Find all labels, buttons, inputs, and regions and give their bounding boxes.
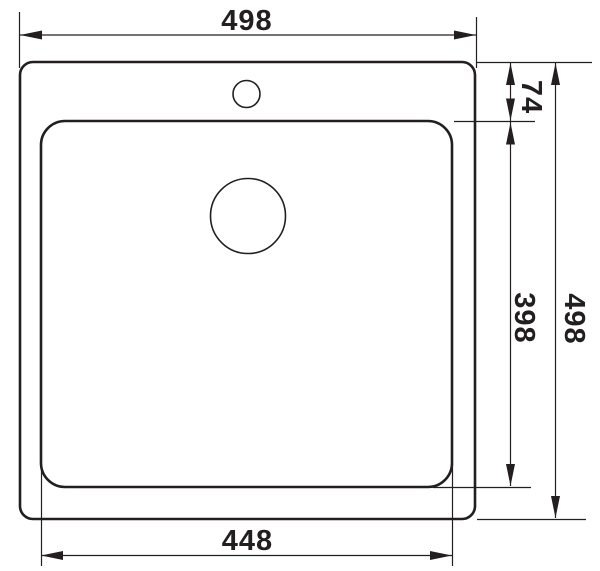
- arrowhead-up-icon: [506, 123, 515, 145]
- dim-label-basin-depth: 398: [508, 292, 540, 343]
- basin-outline: [41, 121, 452, 487]
- sink-technical-drawing: 498 74 398 498: [0, 0, 600, 571]
- dim-label-overall-depth: 498: [558, 293, 590, 344]
- arrowhead-right-icon: [430, 551, 452, 560]
- dim-label-basin-width: 448: [222, 525, 273, 557]
- arrowhead-up-icon: [506, 63, 515, 85]
- arrowhead-down-icon: [551, 496, 560, 518]
- dim-overall-width: 498: [20, 5, 477, 68]
- drawing-canvas: 498 74 398 498: [0, 0, 600, 571]
- arrowhead-right-icon: [454, 31, 476, 40]
- dim-basin-width: 448: [41, 464, 453, 566]
- dim-label-rim-to-basin-top: 74: [515, 80, 547, 114]
- dim-label-overall-width: 498: [221, 5, 272, 37]
- arrowhead-left-icon: [41, 551, 63, 560]
- arrowhead-up-icon: [551, 63, 560, 85]
- faucet-hole: [233, 81, 260, 108]
- sink-body: [20, 62, 475, 519]
- arrowhead-down-icon: [506, 99, 515, 121]
- dim-basin-depth: 398: [433, 122, 540, 488]
- drain-hole: [211, 179, 286, 254]
- sink-outer-outline: [20, 62, 475, 519]
- arrowhead-down-icon: [506, 464, 515, 486]
- dim-overall-depth: 498: [477, 63, 590, 520]
- arrowhead-left-icon: [20, 31, 42, 40]
